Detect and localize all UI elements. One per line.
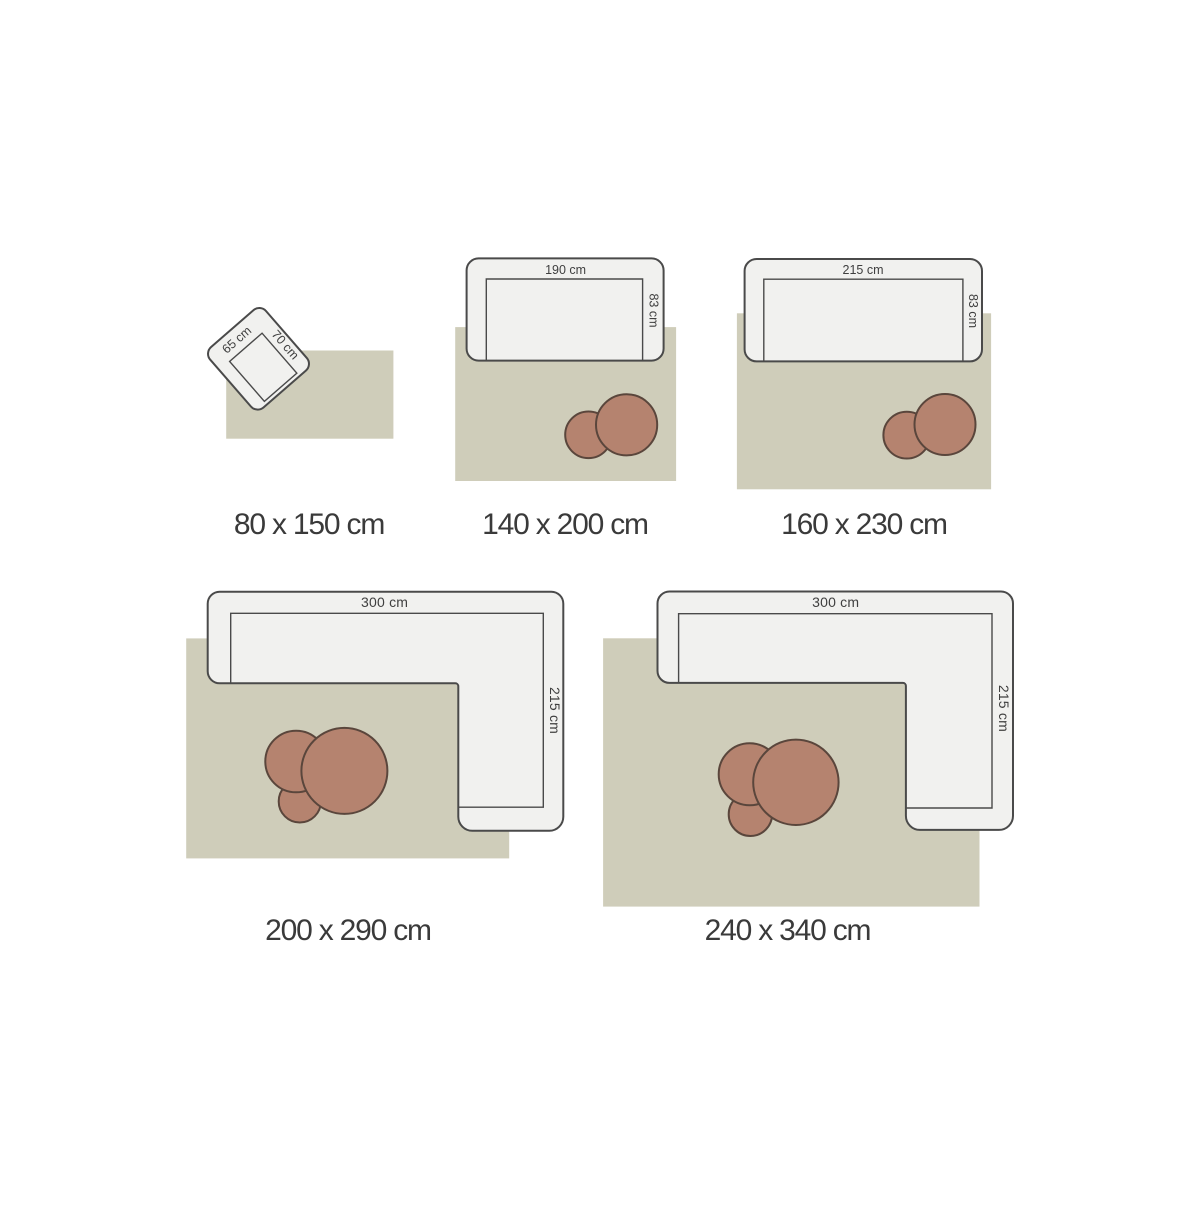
svg-text:80 x 150 cm: 80 x 150 cm (234, 508, 384, 541)
svg-text:300 cm: 300 cm (361, 594, 408, 610)
svg-text:83 cm: 83 cm (647, 293, 661, 327)
svg-text:215 cm: 215 cm (996, 685, 1012, 732)
svg-text:240 x 340 cm: 240 x 340 cm (705, 914, 871, 947)
svg-text:190 cm: 190 cm (545, 263, 586, 277)
svg-text:140 x 200 cm: 140 x 200 cm (482, 508, 648, 541)
svg-text:83 cm: 83 cm (966, 294, 980, 328)
svg-text:215 cm: 215 cm (547, 687, 563, 734)
svg-text:160 x 230 cm: 160 x 230 cm (781, 508, 947, 541)
svg-text:300 cm: 300 cm (812, 594, 859, 610)
svg-text:215 cm: 215 cm (843, 263, 884, 277)
svg-text:200 x 290 cm: 200 x 290 cm (265, 914, 431, 947)
